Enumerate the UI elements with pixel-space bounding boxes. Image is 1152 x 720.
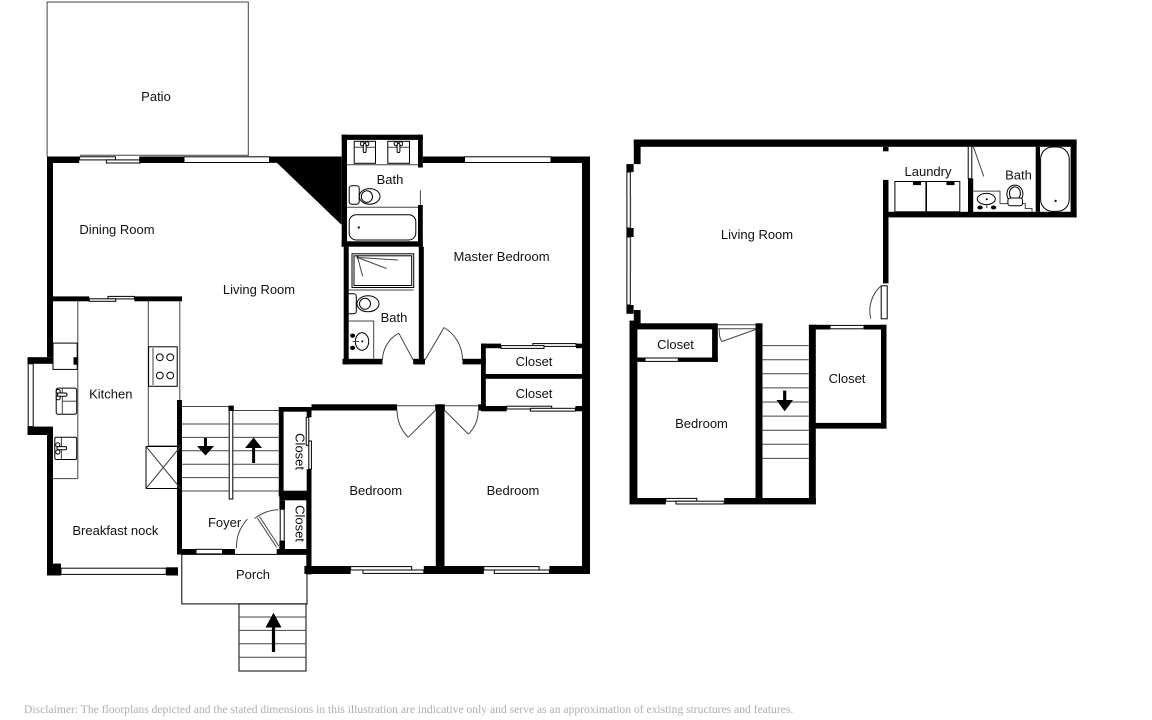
svg-text:Bath: Bath: [1005, 168, 1032, 183]
svg-text:Closet: Closet: [657, 337, 694, 352]
svg-text:Dining Room: Dining Room: [79, 222, 154, 237]
svg-text:Living Room: Living Room: [721, 227, 793, 242]
svg-text:Porch: Porch: [236, 567, 270, 582]
svg-text:Foyer: Foyer: [208, 515, 242, 530]
svg-text:Closet: Closet: [516, 386, 553, 401]
svg-text:Patio: Patio: [141, 89, 171, 104]
svg-text:Bedroom: Bedroom: [675, 416, 728, 431]
svg-text:Closet: Closet: [829, 371, 866, 386]
svg-text:Breakfast nock: Breakfast nock: [72, 523, 158, 538]
svg-text:Bedroom: Bedroom: [349, 483, 402, 498]
svg-text:Disclaimer: The floorplans dep: Disclaimer: The floorplans depicted and …: [24, 703, 793, 716]
svg-text:Bedroom: Bedroom: [487, 483, 540, 498]
svg-text:Closet: Closet: [516, 354, 553, 369]
svg-text:Closet: Closet: [293, 505, 308, 542]
svg-text:Kitchen: Kitchen: [89, 387, 132, 402]
svg-text:Laundry: Laundry: [905, 164, 952, 179]
svg-text:Closet: Closet: [293, 433, 308, 470]
svg-text:Bath: Bath: [377, 172, 404, 187]
svg-text:Living Room: Living Room: [223, 282, 295, 297]
svg-text:Master Bedroom: Master Bedroom: [453, 249, 549, 264]
svg-text:Bath: Bath: [381, 310, 408, 325]
